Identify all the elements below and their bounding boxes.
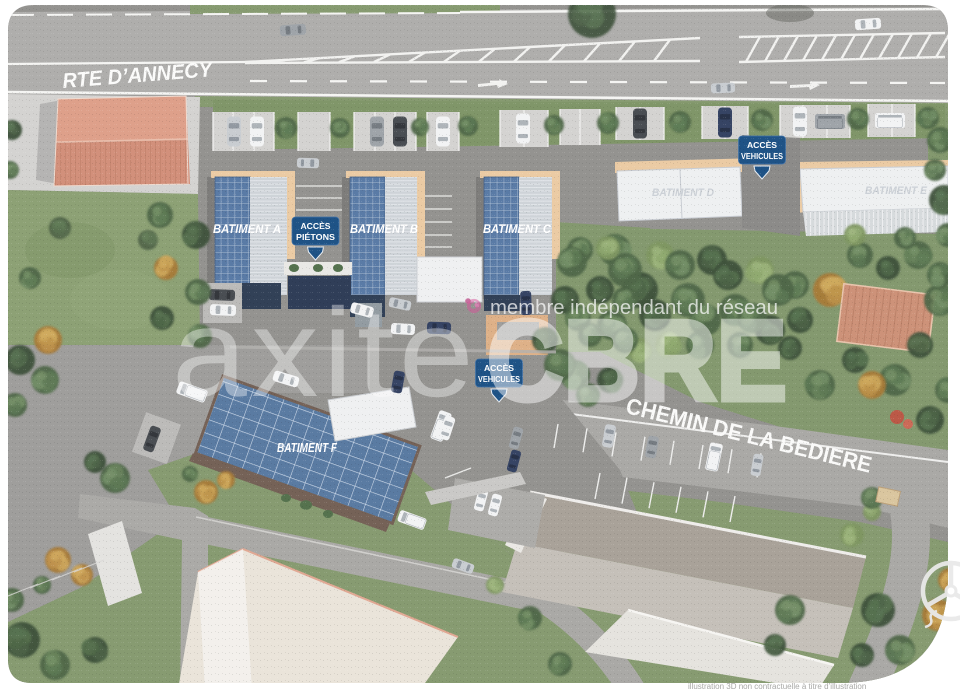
svg-text:illustration 3D non contractue: illustration 3D non contractuelle à titr… bbox=[688, 682, 866, 690]
svg-text:membre indépendant du réseau: membre indépendant du réseau bbox=[490, 296, 778, 319]
svg-text:axite: axite bbox=[172, 282, 478, 423]
